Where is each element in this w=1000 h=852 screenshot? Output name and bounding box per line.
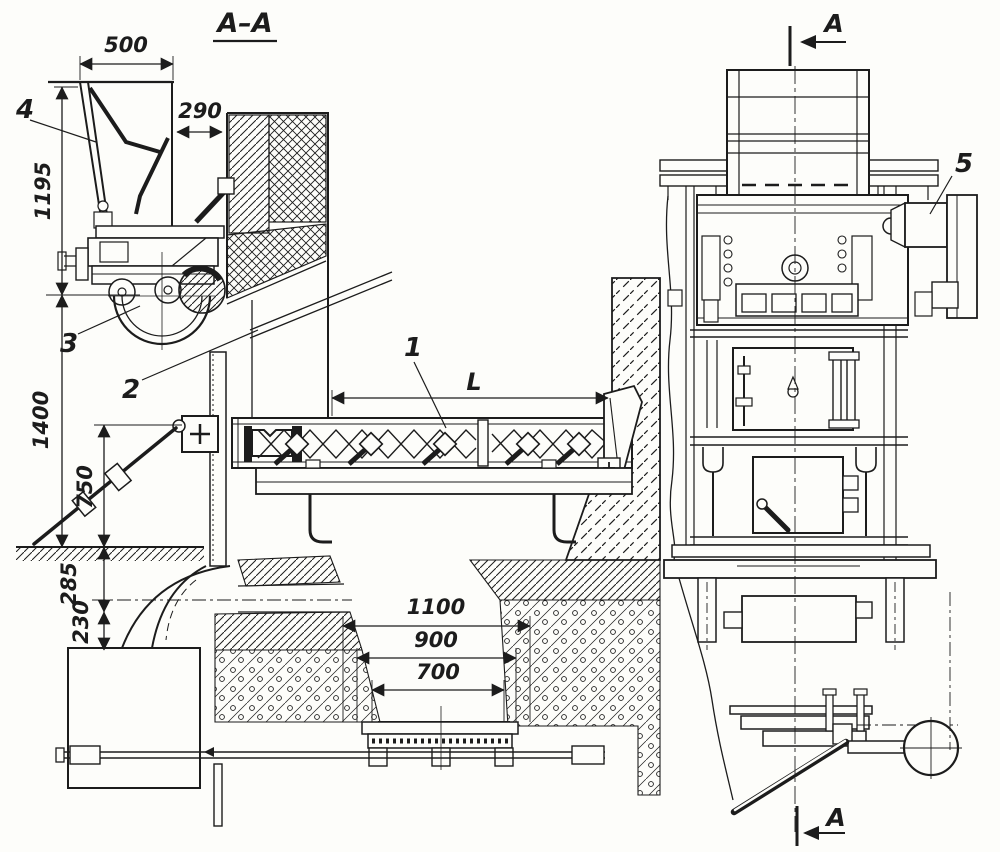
front-view: A A 5: [660, 9, 977, 846]
section-title: A–A: [213, 8, 277, 41]
ground-hatch: [16, 548, 204, 561]
dim-285: 285: [57, 562, 81, 606]
concrete-left: [215, 650, 380, 722]
base-frame: [664, 545, 936, 650]
dim-1400: 1400: [29, 391, 53, 449]
feeder-front: [697, 195, 908, 325]
dim-750: 750: [73, 465, 97, 509]
dim-L: L: [466, 368, 481, 396]
control-lever: [34, 428, 176, 544]
section-marker-top: A: [790, 9, 846, 66]
middle-door-section: [690, 330, 908, 445]
section-title-text: A–A: [215, 8, 272, 39]
dim-1100: 1100: [407, 595, 465, 619]
callout-5: 5: [955, 149, 973, 179]
dim-290: 290: [178, 99, 222, 123]
ash-door: [753, 457, 843, 533]
callout-2: 2: [122, 375, 140, 405]
lower-door-section: [690, 447, 908, 545]
section-marker-bottom: A: [797, 803, 846, 846]
callout-3: 3: [60, 329, 78, 359]
dim-900: 900: [414, 628, 458, 652]
front-wall-wedge: [227, 224, 326, 298]
callout-1: 1: [404, 333, 422, 363]
front-wall-refractory: [269, 115, 326, 222]
dim-500: 500: [104, 33, 148, 57]
drive-post-and-lever: [16, 352, 226, 566]
concrete-right: [500, 600, 660, 795]
dim-1195: 1195: [31, 162, 55, 220]
engineering-drawing: 500 290 1195 1400 750 285 230 1100 900 7…: [0, 0, 1000, 852]
dim-700: 700: [416, 660, 460, 684]
slab-left-2: [215, 612, 362, 650]
section-letter-bottom: A: [824, 803, 845, 832]
front-wall-brick: [229, 115, 269, 233]
slab-left: [238, 556, 340, 586]
dim-230: 230: [69, 600, 93, 644]
fan-box: [68, 648, 200, 788]
section-letter-top: A: [822, 9, 843, 38]
slab-right: [470, 560, 660, 600]
feeder-assembly: [58, 178, 234, 350]
